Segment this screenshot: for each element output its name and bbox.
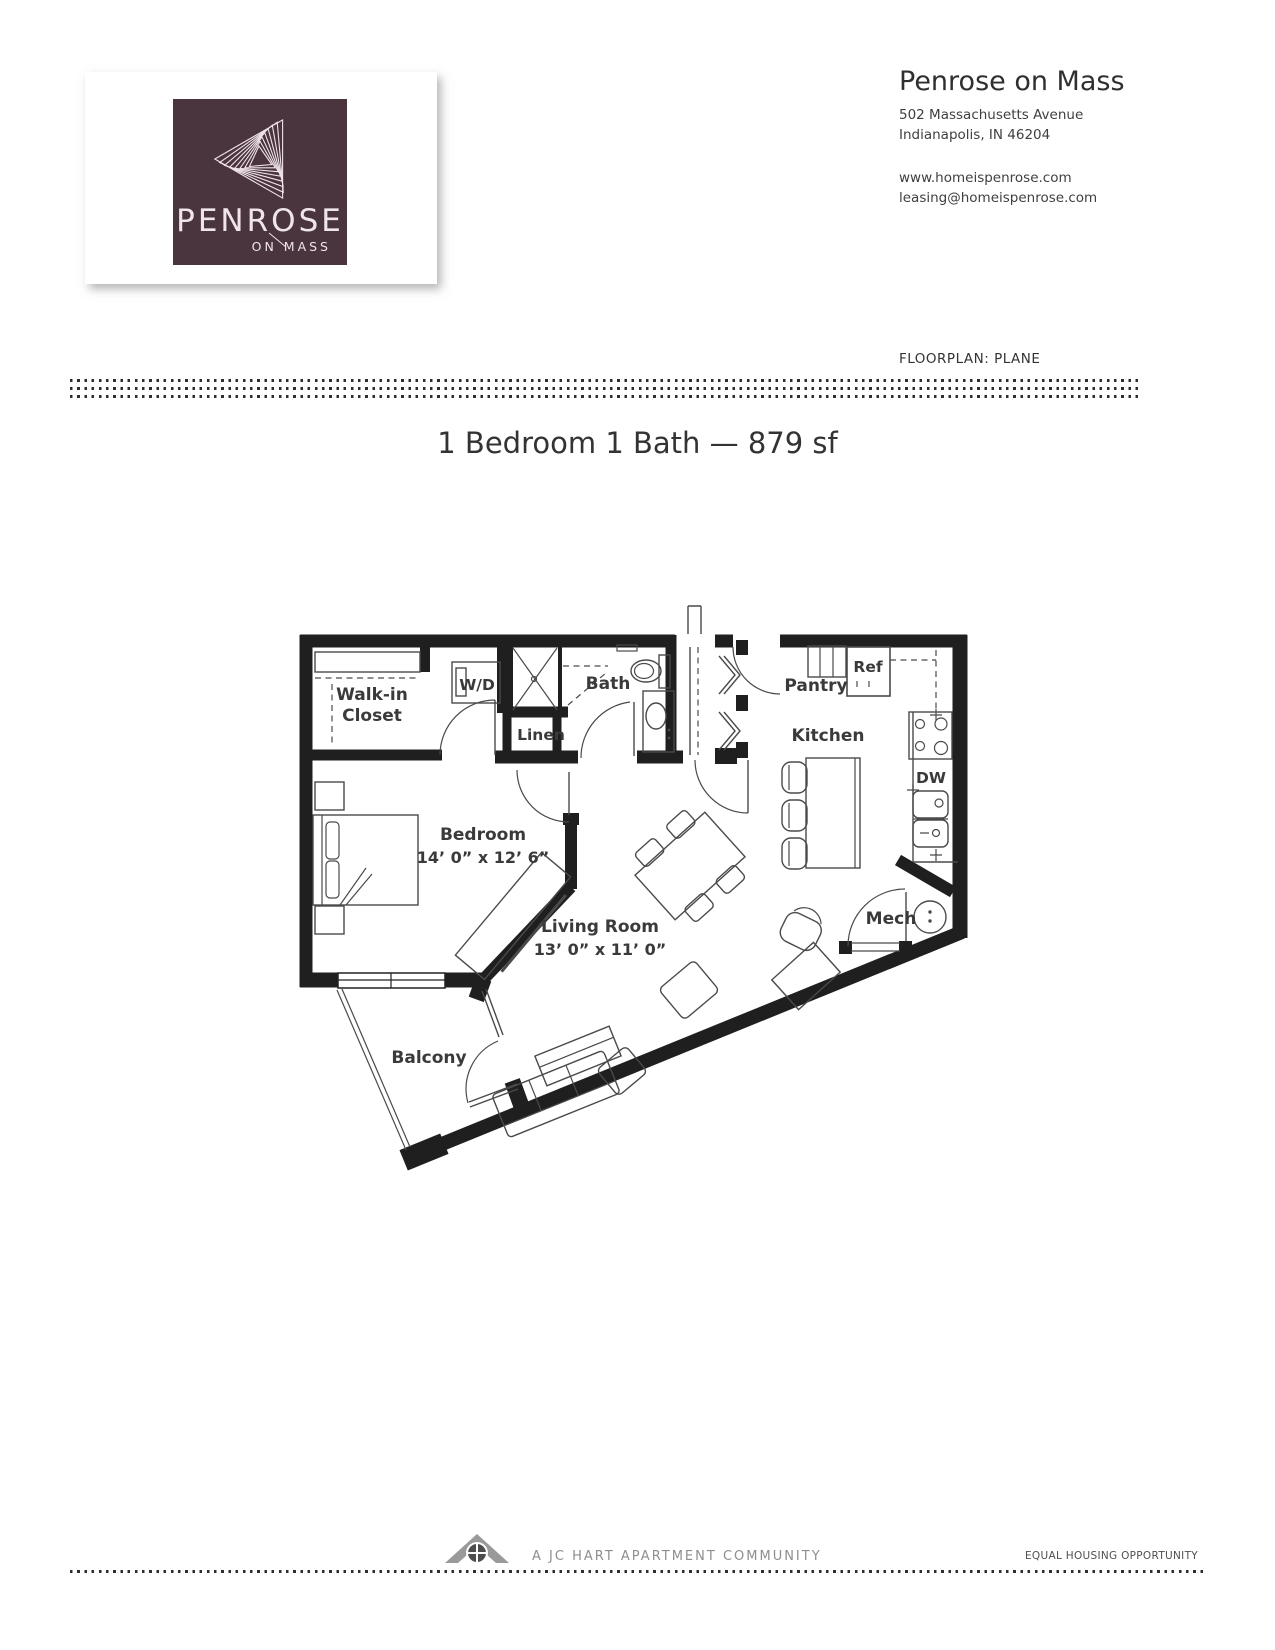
flyer-page: PENROSE ON MASS Penrose on Mass 502 Mass… <box>0 0 1275 1650</box>
bifold-door-icon <box>719 656 740 694</box>
label-pantry: Pantry <box>784 676 847 696</box>
toilet <box>631 655 670 688</box>
floorplan-label: FLOORPLAN: PLANE <box>899 351 1040 367</box>
website: www.homeispenrose.com <box>899 168 1125 188</box>
accent-chair <box>659 960 720 1020</box>
label-washer-dryer: W/D <box>459 676 495 694</box>
email: leasing@homeispenrose.com <box>899 188 1125 208</box>
balcony-railing <box>337 989 410 1150</box>
shower <box>511 645 560 713</box>
entry-door-leaf <box>688 606 701 634</box>
mech-threshold <box>851 943 900 951</box>
dotted-divider <box>70 379 1140 403</box>
label-bedroom: Bedroom <box>440 825 526 845</box>
label-mech: Mech <box>866 909 917 929</box>
bar-stools <box>782 762 807 869</box>
bedroom-door-arc <box>517 770 569 822</box>
address-line2: Indianapolis, IN 46204 <box>899 125 1125 145</box>
label-dishwasher: DW <box>916 769 946 787</box>
fixtures <box>313 645 958 1150</box>
hall-door-arc <box>695 760 748 813</box>
label-bedroom-dim: 14’ 0” x 12’ 6” <box>417 848 550 867</box>
label-refrigerator: Ref <box>853 658 882 676</box>
stove <box>909 712 952 759</box>
page-title: 1 Bedroom 1 Bath — 879 sf <box>0 426 1275 460</box>
penrose-logo: PENROSE ON MASS <box>173 99 347 265</box>
nightstand <box>315 782 344 810</box>
label-walk-in-closet: Walk-in <box>336 685 408 705</box>
pantry-shelf <box>808 646 846 677</box>
barrel-chair <box>777 901 829 954</box>
kitchen-sink <box>913 791 948 847</box>
balcony-door-arc <box>466 1041 498 1103</box>
nightstand <box>315 906 344 934</box>
bedroom-window <box>338 973 445 988</box>
header: Penrose on Mass 502 Massachusetts Avenue… <box>899 66 1125 208</box>
water-heater <box>914 901 946 933</box>
company-name: Penrose on Mass <box>899 66 1125 97</box>
address-line1: 502 Massachusetts Avenue <box>899 105 1125 125</box>
label-living-room-dim: 13’ 0” x 11’ 0” <box>534 940 667 959</box>
penrose-logo-art: PENROSE ON MASS <box>173 99 347 265</box>
kitchen-island <box>806 758 860 868</box>
label-balcony: Balcony <box>391 1048 466 1068</box>
label-living-room: Living Room <box>541 917 659 937</box>
logo-sub-text: ON MASS <box>252 239 331 254</box>
closet-door-arc <box>440 700 495 755</box>
bath-door-arc <box>581 702 630 758</box>
label-bath: Bath <box>586 674 631 694</box>
footer-dotted-line <box>70 1570 1205 1573</box>
footer-community-text: A JC HART APARTMENT COMMUNITY <box>532 1549 822 1564</box>
equal-housing-text: EQUAL HOUSING OPPORTUNITY <box>1025 1550 1198 1562</box>
label-walk-in-closet-2: Closet <box>342 706 402 726</box>
label-linen: Linen <box>517 726 565 744</box>
closet-shelf <box>315 652 420 672</box>
label-kitchen: Kitchen <box>792 726 865 746</box>
bed <box>313 815 418 905</box>
penrose-triangle-icon <box>215 120 283 198</box>
logo-brand-text: PENROSE <box>176 203 344 239</box>
floor-plan: Walk-in Closet W/D Bath Linen Pantry Ref… <box>280 588 980 1200</box>
logo-card: PENROSE ON MASS <box>85 72 437 284</box>
dining-table <box>624 800 755 931</box>
jchart-house-icon <box>445 1534 509 1564</box>
